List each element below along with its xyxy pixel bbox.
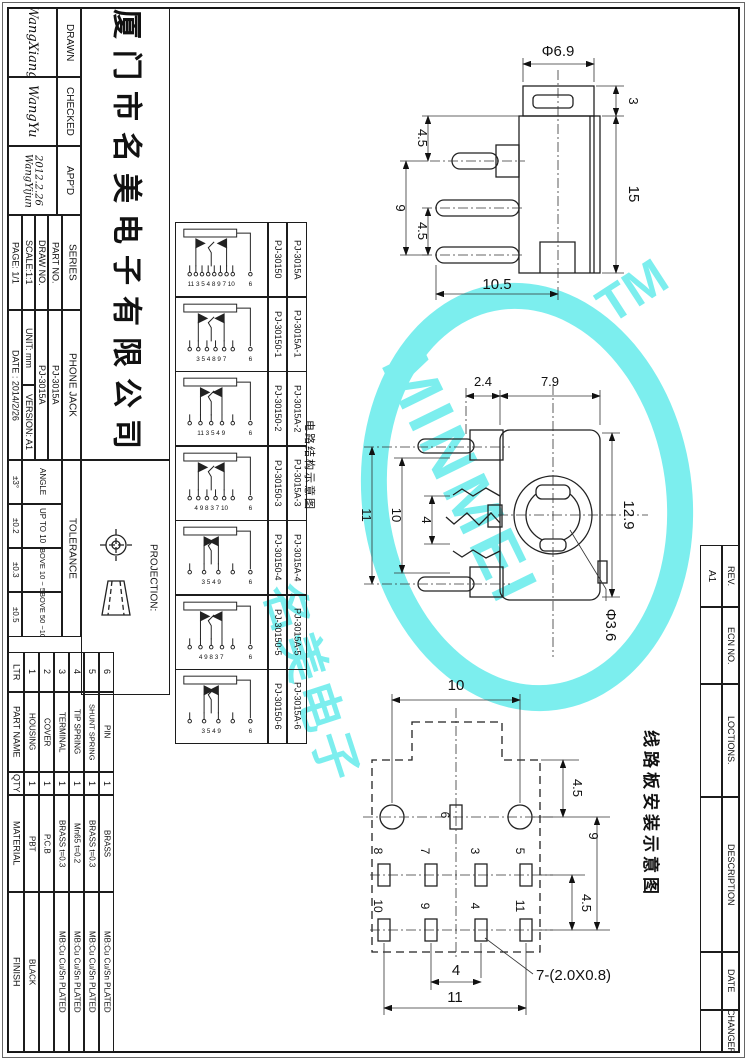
appd-label-cell: APP'D bbox=[57, 146, 81, 215]
cell-text: MB:Cu Cu/Sn PLATED bbox=[73, 931, 81, 1013]
svg-text:6: 6 bbox=[249, 579, 253, 586]
date-cell: DATE : 2014/2/26 bbox=[8, 310, 22, 460]
pad-size-note: 7-(2.0X0.8) bbox=[536, 967, 611, 984]
cell-text: 4 bbox=[72, 669, 81, 674]
page-value: PAGE: 1/1 bbox=[11, 242, 20, 284]
parts-row3-name: TERMINAL bbox=[54, 692, 69, 772]
tolerance-header-cell: TOLERANCE bbox=[62, 460, 81, 637]
parts-row6-material: BRASS bbox=[99, 795, 114, 892]
draw-no-label: DRAW NO. bbox=[37, 240, 46, 286]
dim-45a: 4.5 bbox=[570, 779, 585, 797]
parts-row4-name: TIP SPRING bbox=[69, 692, 84, 772]
unit-cell: UNIT: mm bbox=[22, 310, 35, 385]
cell-text: REV. bbox=[726, 566, 735, 586]
cell-text: BRASS bbox=[103, 830, 111, 857]
parts-row1-ltr: 1 bbox=[24, 652, 39, 692]
cell-text: PJ-30150 bbox=[273, 240, 282, 279]
svg-text:4 9 8 3 7 10: 4 9 8 3 7 10 bbox=[194, 504, 228, 511]
loctions-label-cell: LOCTIONS. bbox=[722, 684, 739, 797]
checked-label: CHECKED bbox=[64, 87, 74, 136]
variant-drawing-no: PJ-30150-5 bbox=[268, 595, 287, 670]
circuit-diagram-caption: 电路结构示意图 bbox=[303, 420, 314, 511]
cell-text: A1 bbox=[706, 570, 716, 582]
cell-text: 5 bbox=[87, 669, 96, 674]
tolerance-range-angle: ANGLE bbox=[22, 460, 62, 504]
svg-text:6: 6 bbox=[249, 728, 253, 735]
schematic-cell: 4 9 8 3 76 bbox=[175, 595, 268, 670]
svg-text:6: 6 bbox=[249, 430, 253, 437]
hdr: MATERIAL bbox=[12, 821, 21, 865]
page-cell: PAGE: 1/1 bbox=[8, 215, 22, 310]
cell-text: PJ-3015A bbox=[293, 240, 302, 280]
variant-drawing-no: PJ-30150 bbox=[268, 222, 287, 297]
parts-row5-material: BRASS t=0.3 bbox=[84, 795, 99, 892]
description-value-cell bbox=[700, 797, 722, 952]
pad-label-6: 6 bbox=[438, 812, 452, 819]
pad-label-4: 4 bbox=[468, 903, 482, 910]
tolerance-value-upto10: ±0.2 bbox=[8, 504, 22, 548]
hdr: FINISH bbox=[12, 957, 21, 987]
cell-text: HOUSING bbox=[28, 713, 36, 750]
drawn-label-cell: DRAWN bbox=[57, 8, 81, 77]
cell-text: PJ-3015A-4 bbox=[293, 534, 302, 582]
cell-text: 2 bbox=[42, 669, 51, 674]
parts-header-finish: FINISH bbox=[8, 892, 24, 1052]
dim-11: 11 bbox=[359, 508, 374, 522]
tol-range: ANGLE bbox=[38, 468, 46, 495]
cell-text: 1 bbox=[72, 781, 81, 786]
schematic-cell: 3 5 4 96 bbox=[175, 669, 268, 744]
cell-text: PJ-30150-3 bbox=[273, 460, 282, 507]
cell-text: Mn65 t=0.2 bbox=[73, 823, 81, 863]
tol-range: UP TO 10 bbox=[38, 508, 46, 543]
svg-text:11 3 5 4 8 9 7 10: 11 3 5 4 8 9 7 10 bbox=[188, 281, 236, 288]
appd-date: 2012.2.26 bbox=[33, 155, 43, 206]
svg-text:4 9 8 3 7: 4 9 8 3 7 bbox=[199, 653, 224, 660]
parts-row2-material: P.C.B bbox=[39, 795, 54, 892]
dim-4: 4 bbox=[419, 516, 434, 523]
checked-label-cell: CHECKED bbox=[57, 77, 81, 146]
checked-signature: WangYu bbox=[26, 85, 39, 138]
dim-hole: Φ3.6 bbox=[602, 609, 619, 642]
loctions-value-cell bbox=[700, 684, 722, 797]
pcb-layout-view: 10 4.5 9 4.5 4 11 7-(2.0X0.8) 6 8 7 3 5 … bbox=[365, 660, 665, 1025]
variant-part-no: PJ-3015A-1 bbox=[287, 297, 307, 372]
pad-label-3: 3 bbox=[468, 848, 482, 855]
parts-row6-qty: 1 bbox=[99, 772, 114, 795]
cell-text: PJ-30150-1 bbox=[273, 311, 282, 358]
parts-row2-finish bbox=[39, 892, 54, 1052]
part-no-label-cell: PART NO. bbox=[48, 215, 62, 310]
dim-diameter: Φ6.9 bbox=[542, 43, 575, 60]
dim-79: 7.9 bbox=[541, 374, 559, 389]
changer-label-cell: CHANGER bbox=[722, 1010, 739, 1052]
variant-part-no: PJ-3015A-6 bbox=[287, 669, 307, 744]
schematic-cell: 11 3 5 4 8 9 7 106 bbox=[175, 222, 268, 297]
variant-drawing-no: PJ-30150-6 bbox=[268, 669, 287, 744]
dim-129: 12.9 bbox=[620, 500, 637, 529]
dim-row-span: 11 bbox=[447, 989, 463, 1006]
parts-row1-name: HOUSING bbox=[24, 692, 39, 772]
pad-label-11: 11 bbox=[513, 900, 527, 913]
cell-text: LOCTIONS. bbox=[726, 716, 735, 765]
cell-text: CHANGER bbox=[726, 1010, 735, 1052]
hdr: QTY bbox=[12, 774, 21, 793]
hdr: PART NAME bbox=[12, 706, 21, 758]
dim-depth: 10.5 bbox=[482, 276, 511, 293]
rev-value-cell: A1 bbox=[700, 545, 722, 607]
hdr: LTR bbox=[12, 664, 21, 680]
draw-no-label-cell: DRAW NO. bbox=[35, 215, 48, 310]
dim-body-height: 15 bbox=[625, 186, 642, 203]
parts-row3-ltr: 3 bbox=[54, 652, 69, 692]
dim-45b: 4.5 bbox=[579, 894, 594, 912]
dim-pin-offset-bottom: 4.5 bbox=[415, 222, 430, 240]
scale-value: SCALE:1:1 bbox=[24, 240, 33, 285]
scale-cell: SCALE:1:1 bbox=[22, 215, 35, 310]
tol-range: ABOVE 50 ~100 bbox=[38, 592, 46, 637]
parts-row2-name: COVER bbox=[39, 692, 54, 772]
parts-row6-finish: MB:Cu Cu/Sn PLATED bbox=[99, 892, 114, 1052]
cell-text: 3 bbox=[57, 669, 66, 674]
tol-value: ±3° bbox=[11, 476, 19, 488]
cell-text: PIN bbox=[103, 725, 111, 738]
variant-drawing-no: PJ-30150-1 bbox=[268, 297, 287, 372]
tol-value: ±0.3 bbox=[11, 562, 19, 578]
parts-row4-finish: MB:Cu Cu/Sn PLATED bbox=[69, 892, 84, 1052]
cell-text: PJ-3015A-5 bbox=[293, 608, 302, 656]
cell-text: PJ-3015A-1 bbox=[293, 310, 302, 358]
parts-header-material: MATERIAL bbox=[8, 795, 24, 892]
cell-text: 1 bbox=[57, 781, 66, 786]
cell-text: 1 bbox=[42, 781, 51, 786]
tol-value: ±0.2 bbox=[11, 518, 19, 534]
schematic-cell: 11 3 5 4 96 bbox=[175, 371, 268, 446]
checked-signature-cell: WangYu bbox=[8, 77, 57, 146]
part-no-label: PART NO. bbox=[51, 242, 60, 284]
pad-label-10: 10 bbox=[371, 899, 385, 913]
cell-text: 1 bbox=[27, 781, 36, 786]
cell-text: 1 bbox=[102, 781, 111, 786]
drawn-signature: WangXiang bbox=[26, 8, 39, 77]
ecn-label-cell: ECN NO. bbox=[722, 607, 739, 684]
date-label-cell: DATE bbox=[722, 952, 739, 1010]
cell-text: BRASS t=0.3 bbox=[88, 820, 96, 867]
pad-label-7: 7 bbox=[418, 848, 432, 855]
parts-row4-ltr: 4 bbox=[69, 652, 84, 692]
dim-pin-span: 9 bbox=[393, 204, 408, 211]
projection-symbol-icon bbox=[94, 523, 138, 633]
cell-text: PJ-3015A-2 bbox=[293, 385, 302, 433]
cell-text: BRASS t=0.3 bbox=[58, 820, 66, 867]
part-no-value: PJ-3015A bbox=[51, 365, 60, 405]
parts-header-qty: QTY bbox=[8, 772, 24, 795]
dim-24: 2.4 bbox=[474, 374, 492, 389]
dim-pad-gap: 4 bbox=[452, 962, 460, 979]
drawn-signature-cell: WangXiang bbox=[8, 8, 57, 77]
company-name-cell: 厦门市名美电子有限公司 bbox=[81, 8, 170, 460]
cell-text: MB:Cu Cu/Sn PLATED bbox=[88, 931, 96, 1013]
cell-text: 1 bbox=[27, 669, 36, 674]
variant-part-no: PJ-3015A bbox=[287, 222, 307, 297]
variant-drawing-no: PJ-30150-4 bbox=[268, 520, 287, 595]
schematic-cell: 3 5 4 96 bbox=[175, 520, 268, 595]
pad-label-5: 5 bbox=[513, 848, 527, 855]
cell-text: PBT bbox=[28, 836, 36, 852]
pad-label-9: 9 bbox=[418, 903, 432, 910]
dim-pin-offset-top: 4.5 bbox=[415, 129, 430, 147]
parts-row5-ltr: 5 bbox=[84, 652, 99, 692]
svg-text:3 5 4 9: 3 5 4 9 bbox=[201, 579, 221, 586]
appd-signature: WangYijun bbox=[23, 154, 33, 208]
svg-text:3 5 4 9: 3 5 4 9 bbox=[201, 728, 221, 735]
company-name: 厦门市名美电子有限公司 bbox=[111, 9, 141, 460]
schematic-cell: 4 9 8 3 7 106 bbox=[175, 446, 268, 521]
variant-drawing-no: PJ-30150-2 bbox=[268, 371, 287, 446]
tolerance-label: TOLERANCE bbox=[67, 518, 77, 579]
cell-text: 1 bbox=[87, 781, 96, 786]
rev-label-cell: REV. bbox=[722, 545, 739, 607]
tolerance-value-10-50: ±0.3 bbox=[8, 548, 22, 592]
series-label: SERIES bbox=[67, 244, 77, 281]
variant-part-no: PJ-3015A-5 bbox=[287, 595, 307, 670]
tolerance-range-upto10: UP TO 10 bbox=[22, 504, 62, 548]
pcb-caption: 线路板安装示意图 bbox=[642, 730, 659, 898]
parts-row2-ltr: 2 bbox=[39, 652, 54, 692]
drawing-sheet: TM MINMEI 名美电子 WangXiang WangYu WangYiju… bbox=[0, 0, 747, 1060]
series-label-cell: SERIES bbox=[62, 215, 81, 310]
svg-text:6: 6 bbox=[249, 653, 253, 660]
cell-text: PJ-30150-5 bbox=[273, 609, 282, 656]
parts-row3-qty: 1 bbox=[54, 772, 69, 795]
parts-row1-qty: 1 bbox=[24, 772, 39, 795]
draw-no-value: PJ-3015A bbox=[37, 365, 46, 405]
tolerance-range-10-50: ABOVE 10 ~ 50 bbox=[22, 548, 62, 592]
cell-text: DESCRIPTION bbox=[726, 844, 735, 906]
series-value-cell: PHONE JACK bbox=[62, 310, 81, 460]
changer-value-cell bbox=[700, 1010, 722, 1052]
cell-text: MB:Cu Cu/Sn PLATED bbox=[103, 931, 111, 1013]
parts-row4-qty: 1 bbox=[69, 772, 84, 795]
parts-row5-name: SHUNT SPRING bbox=[84, 692, 99, 772]
parts-row5-qty: 1 bbox=[84, 772, 99, 795]
cell-text: ECN NO. bbox=[726, 627, 735, 665]
tol-value: ±0.5 bbox=[11, 607, 19, 623]
cell-text: BLACK bbox=[28, 959, 36, 985]
parts-row1-finish: BLACK bbox=[24, 892, 39, 1052]
cell-text: DATE bbox=[726, 969, 735, 992]
parts-row2-qty: 1 bbox=[39, 772, 54, 795]
schematic-cell: 3 5 4 8 9 76 bbox=[175, 297, 268, 372]
unit-value: UNIT: mm bbox=[24, 328, 33, 368]
parts-header-ltr: LTR bbox=[8, 652, 24, 692]
appd-signature-cell: WangYijun 2012.2.26 bbox=[8, 146, 57, 215]
projection-label: PROJECTION: bbox=[148, 544, 158, 611]
parts-header-name: PART NAME bbox=[8, 692, 24, 772]
date-value: DATE : 2014/2/26 bbox=[11, 350, 20, 421]
series-value: PHONE JACK bbox=[67, 353, 77, 417]
cell-text: P.C.B bbox=[43, 834, 51, 854]
cell-text: TERMINAL bbox=[58, 712, 66, 752]
dim-10: 10 bbox=[389, 508, 404, 522]
svg-text:11 3 5 4 9: 11 3 5 4 9 bbox=[197, 430, 225, 437]
version-cell: VERSION: A1 bbox=[22, 385, 35, 460]
version-value: VERSION: A1 bbox=[24, 394, 33, 450]
variant-drawing-no: PJ-30150-3 bbox=[268, 446, 287, 521]
svg-text:6: 6 bbox=[249, 355, 253, 362]
tolerance-value-50-100: ±0.5 bbox=[8, 592, 22, 637]
cell-text: PJ-3015A-3 bbox=[293, 459, 302, 507]
cell-text: TIP SPRING bbox=[73, 709, 81, 754]
drawn-label: DRAWN bbox=[64, 24, 74, 61]
tolerance-value-angle: ±3° bbox=[8, 460, 22, 504]
cell-text: MB:Cu Cu/Sn PLATED bbox=[58, 931, 66, 1013]
cell-text: PJ-30150-6 bbox=[273, 683, 282, 730]
dim-9: 9 bbox=[586, 832, 601, 839]
description-label-cell: DESCRIPTION bbox=[722, 797, 739, 952]
cell-text: PJ-30150-2 bbox=[273, 385, 282, 432]
dim-cap-height: 3 bbox=[626, 97, 641, 104]
parts-row5-finish: MB:Cu Cu/Sn PLATED bbox=[84, 892, 99, 1052]
parts-row4-material: Mn65 t=0.2 bbox=[69, 795, 84, 892]
side-view: Φ6.9 3 15 4.5 9 4.5 10.5 bbox=[380, 10, 695, 310]
date-value-cell bbox=[700, 952, 722, 1010]
tolerance-range-50-100: ABOVE 50 ~100 bbox=[22, 592, 62, 637]
svg-text:3 5 4 8 9 7: 3 5 4 8 9 7 bbox=[196, 355, 227, 362]
parts-row3-finish: MB:Cu Cu/Sn PLATED bbox=[54, 892, 69, 1052]
tol-range: ABOVE 10 ~ 50 bbox=[38, 548, 46, 592]
cell-text: PJ-3015A-6 bbox=[293, 682, 302, 730]
variant-part-no: PJ-3015A-4 bbox=[287, 520, 307, 595]
parts-row1-material: PBT bbox=[24, 795, 39, 892]
cell-text: SHUNT SPRING bbox=[88, 704, 96, 761]
cell-text: 6 bbox=[102, 669, 111, 674]
ecn-value-cell bbox=[700, 607, 722, 684]
part-no-value-cell: PJ-3015A bbox=[48, 310, 62, 460]
svg-text:6: 6 bbox=[249, 504, 253, 511]
draw-no-value-cell: PJ-3015A bbox=[35, 310, 48, 460]
parts-row6-ltr: 6 bbox=[99, 652, 114, 692]
pad-label-8: 8 bbox=[371, 848, 385, 855]
front-view: 2.4 7.9 11 10 4 12.9 Φ3.6 bbox=[350, 355, 660, 665]
dim-hole-span: 10 bbox=[448, 677, 465, 694]
parts-row3-material: BRASS t=0.3 bbox=[54, 795, 69, 892]
appd-label: APP'D bbox=[64, 166, 74, 195]
svg-text:6: 6 bbox=[249, 281, 253, 288]
cell-text: PJ-30150-4 bbox=[273, 534, 282, 581]
cell-text: COVER bbox=[43, 718, 51, 746]
parts-row6-name: PIN bbox=[99, 692, 114, 772]
